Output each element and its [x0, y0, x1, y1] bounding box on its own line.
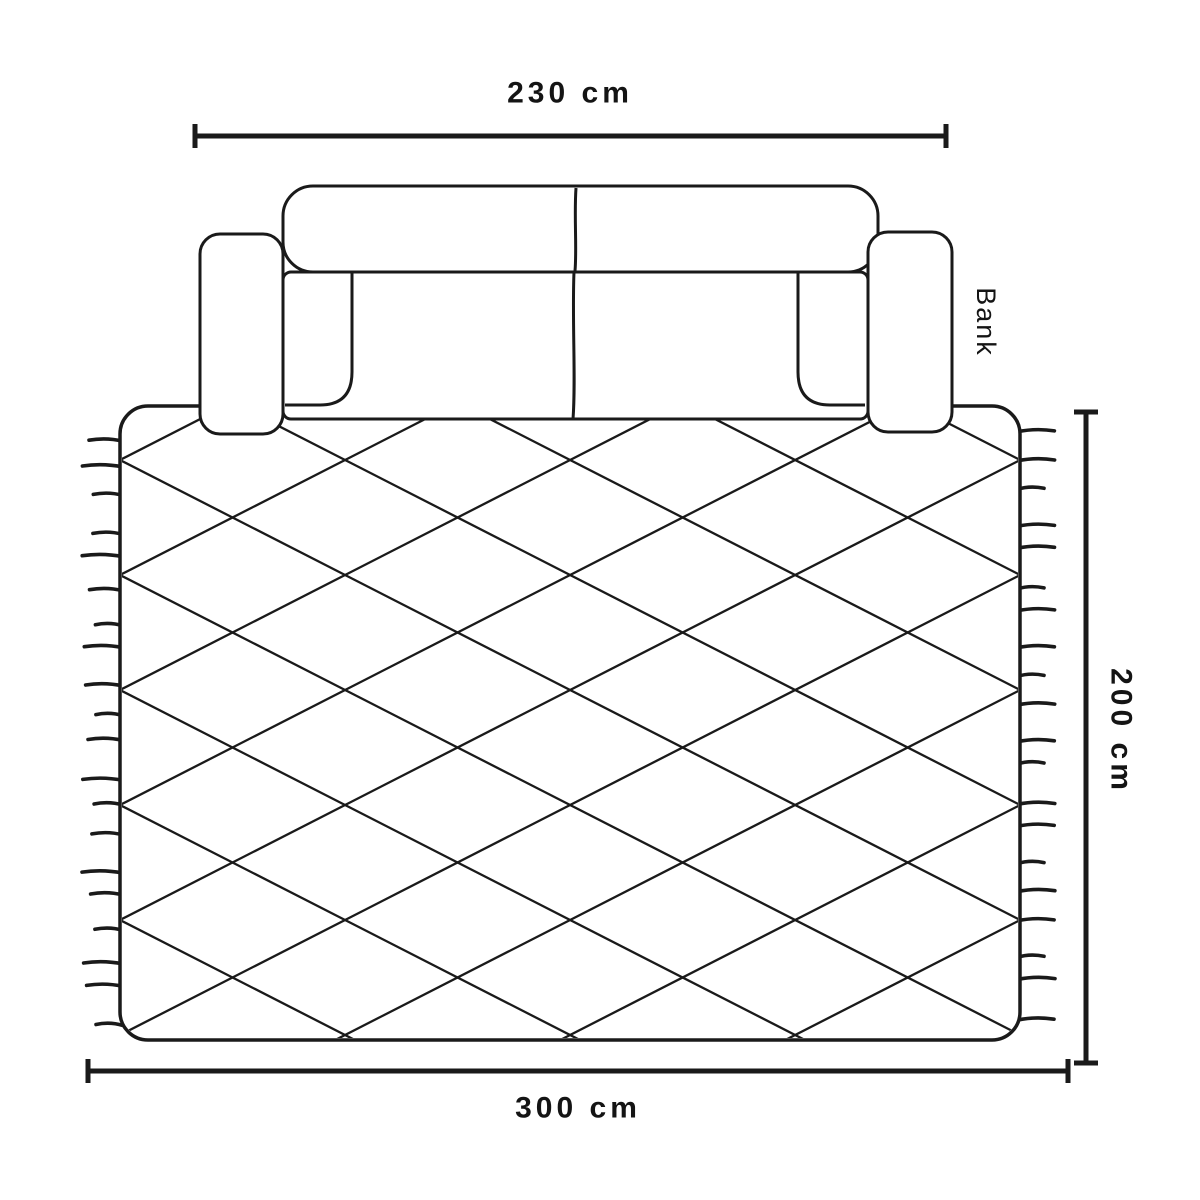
sofa-back-cushion — [283, 186, 878, 272]
rug-outline — [120, 406, 1020, 1040]
fringe-stroke — [1017, 703, 1055, 705]
fringe-stroke — [1017, 889, 1055, 891]
fringe-stroke — [1017, 546, 1055, 548]
rug — [82, 0, 1055, 1200]
fringe-stroke — [1017, 609, 1055, 611]
rug-fringe-right — [1017, 430, 1055, 1021]
fringe-stroke — [87, 984, 123, 986]
rug-size-diagram: Bank 230 cm 300 cm 200 cm — [0, 0, 1200, 1200]
rug-fringe-left — [82, 439, 123, 1026]
fringe-stroke — [1017, 824, 1054, 826]
sofa-armrest-right — [868, 232, 952, 432]
sofa-label: Bank — [971, 287, 1001, 357]
fringe-stroke — [91, 893, 123, 895]
rug-size-diagram-page: Bank 230 cm 300 cm 200 cm — [0, 0, 1200, 1200]
fringe-stroke — [82, 465, 123, 467]
sofa-seat-divider-center — [573, 272, 574, 419]
dimension-rug-width: 300 cm — [88, 1059, 1068, 1125]
sofa-width-label: 230 cm — [507, 77, 633, 110]
fringe-stroke — [82, 871, 123, 873]
fringe-stroke — [83, 778, 123, 780]
fringe-stroke — [84, 962, 123, 964]
fringe-stroke — [89, 439, 123, 441]
fringe-stroke — [1017, 646, 1054, 648]
rug-width-label: 300 cm — [515, 1092, 641, 1125]
fringe-stroke — [1017, 430, 1054, 432]
fringe-stroke — [96, 1023, 123, 1025]
fringe-stroke — [86, 684, 123, 686]
sofa-seat — [283, 272, 868, 419]
fringe-stroke — [1017, 802, 1055, 804]
fringe-stroke — [82, 554, 123, 556]
fringe-stroke — [88, 738, 123, 740]
rug-height-label: 200 cm — [1105, 668, 1138, 794]
dimension-sofa-width: 230 cm — [195, 77, 946, 149]
fringe-stroke — [1017, 524, 1055, 526]
sofa-armrest-left — [200, 234, 283, 434]
fringe-stroke — [1017, 977, 1055, 979]
dimension-rug-height: 200 cm — [1074, 412, 1138, 1063]
fringe-stroke — [1017, 740, 1054, 742]
fringe-stroke — [1017, 1018, 1054, 1020]
fringe-stroke — [1017, 459, 1055, 461]
fringe-stroke — [84, 645, 123, 647]
sofa-back-cushion-split — [575, 188, 576, 271]
sofa: Bank — [200, 186, 1001, 434]
fringe-stroke — [90, 588, 124, 590]
fringe-stroke — [1017, 919, 1054, 921]
